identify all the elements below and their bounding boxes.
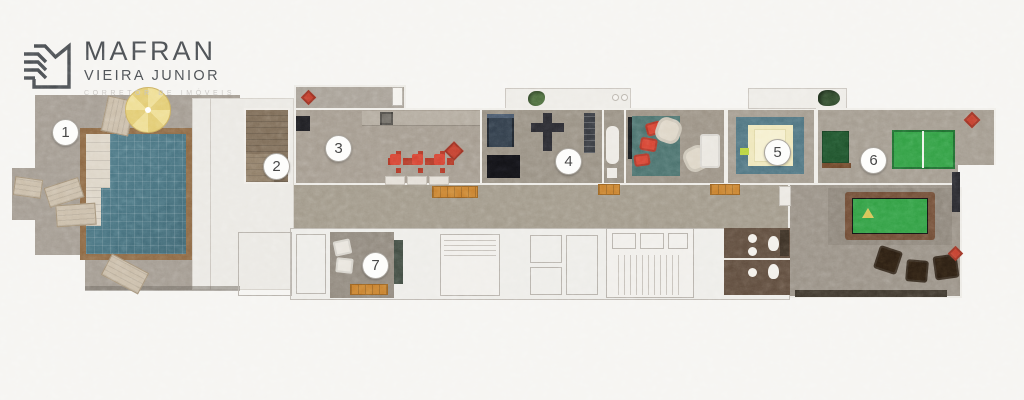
marker-1-label: 1 <box>61 124 69 141</box>
pouf <box>905 259 929 283</box>
cable-machine-icon <box>543 113 552 151</box>
service-room-outline <box>238 232 292 296</box>
white-bench <box>385 176 405 185</box>
treadmill-icon <box>487 114 514 147</box>
mafran-logo-icon <box>20 38 74 96</box>
kids-desk <box>700 134 720 168</box>
sink-icon <box>748 234 757 243</box>
elevator-shaft <box>566 235 598 295</box>
marker-7-label: 7 <box>371 257 379 274</box>
toilet-icon <box>768 236 779 251</box>
marker-3-label: 3 <box>334 140 342 157</box>
marker-4-label: 4 <box>564 153 572 170</box>
marker-5-label: 5 <box>773 144 781 161</box>
red-dining-set <box>408 148 428 174</box>
sink-icon <box>748 247 757 256</box>
sink-icon <box>748 268 757 277</box>
logo-title: MAFRAN <box>84 38 235 65</box>
logo-text: MAFRAN VIEIRA JUNIOR CORRETOR DE IMÓVEIS <box>84 38 235 97</box>
logo: MAFRAN VIEIRA JUNIOR CORRETOR DE IMÓVEIS <box>20 38 235 97</box>
marker-3: 3 <box>325 135 352 162</box>
long-bench <box>795 290 947 297</box>
stair-landing <box>640 233 664 249</box>
lounge-chair <box>55 203 96 228</box>
marker-6-label: 6 <box>869 152 877 169</box>
storage-room-outline <box>296 234 326 294</box>
play-mat-bar <box>628 117 632 159</box>
pool-sun-shelf <box>86 134 110 188</box>
stair-landing <box>612 233 636 249</box>
card-table <box>822 131 849 163</box>
cable-machine-bar <box>531 123 564 132</box>
dumbbell-rack-icon <box>584 113 595 153</box>
vase-icon <box>621 94 628 101</box>
bathroom-partition <box>724 258 790 260</box>
marker-2-label: 2 <box>272 158 280 175</box>
logo-tagline: CORRETOR DE IMÓVEIS <box>84 90 235 97</box>
stair-treads <box>444 238 496 256</box>
stool-white <box>607 168 617 178</box>
orange-bench <box>350 284 388 295</box>
billiard-rack <box>862 208 874 218</box>
marker-4: 4 <box>555 148 582 175</box>
massage-table <box>606 126 619 164</box>
white-bench <box>429 176 449 185</box>
ping-pong-net <box>922 131 924 168</box>
tv-panel <box>952 172 960 212</box>
toilet-icon <box>768 264 779 279</box>
marker-5: 5 <box>764 139 791 166</box>
stove-icon <box>380 112 393 125</box>
marker-2: 2 <box>263 153 290 180</box>
elevator-shaft <box>530 235 562 263</box>
elevator-shaft <box>530 267 562 295</box>
red-dining-set <box>386 148 406 174</box>
patio-wall-line <box>210 98 211 290</box>
red-play-toy <box>639 137 658 153</box>
white-bench <box>407 176 427 185</box>
green-chip <box>740 148 749 155</box>
stair-treads <box>618 255 682 295</box>
elevator-doors <box>394 240 403 284</box>
orange-bench <box>710 184 740 195</box>
marker-1: 1 <box>52 119 79 146</box>
fireplace-icon <box>296 116 310 131</box>
dark-plant-icon <box>818 90 840 106</box>
lounge-chair <box>13 176 43 199</box>
shelf-dark <box>780 230 789 256</box>
armchair <box>335 257 353 274</box>
card-table-edge <box>822 163 851 168</box>
marker-7: 7 <box>362 252 389 279</box>
shelf-white <box>779 186 791 206</box>
red-play-toy <box>633 153 651 167</box>
terrace-door <box>392 87 403 106</box>
logo-subtitle: VIEIRA JUNIOR <box>84 68 235 84</box>
game-room-notch <box>958 165 998 187</box>
orange-bench <box>432 186 478 198</box>
gym-mat <box>487 155 520 178</box>
vase-icon <box>612 94 619 101</box>
pool-terrace-shadow <box>85 286 240 291</box>
stair-landing <box>668 233 688 249</box>
marker-6: 6 <box>860 147 887 174</box>
orange-bench <box>598 184 620 195</box>
umbrella-pole <box>145 107 151 113</box>
